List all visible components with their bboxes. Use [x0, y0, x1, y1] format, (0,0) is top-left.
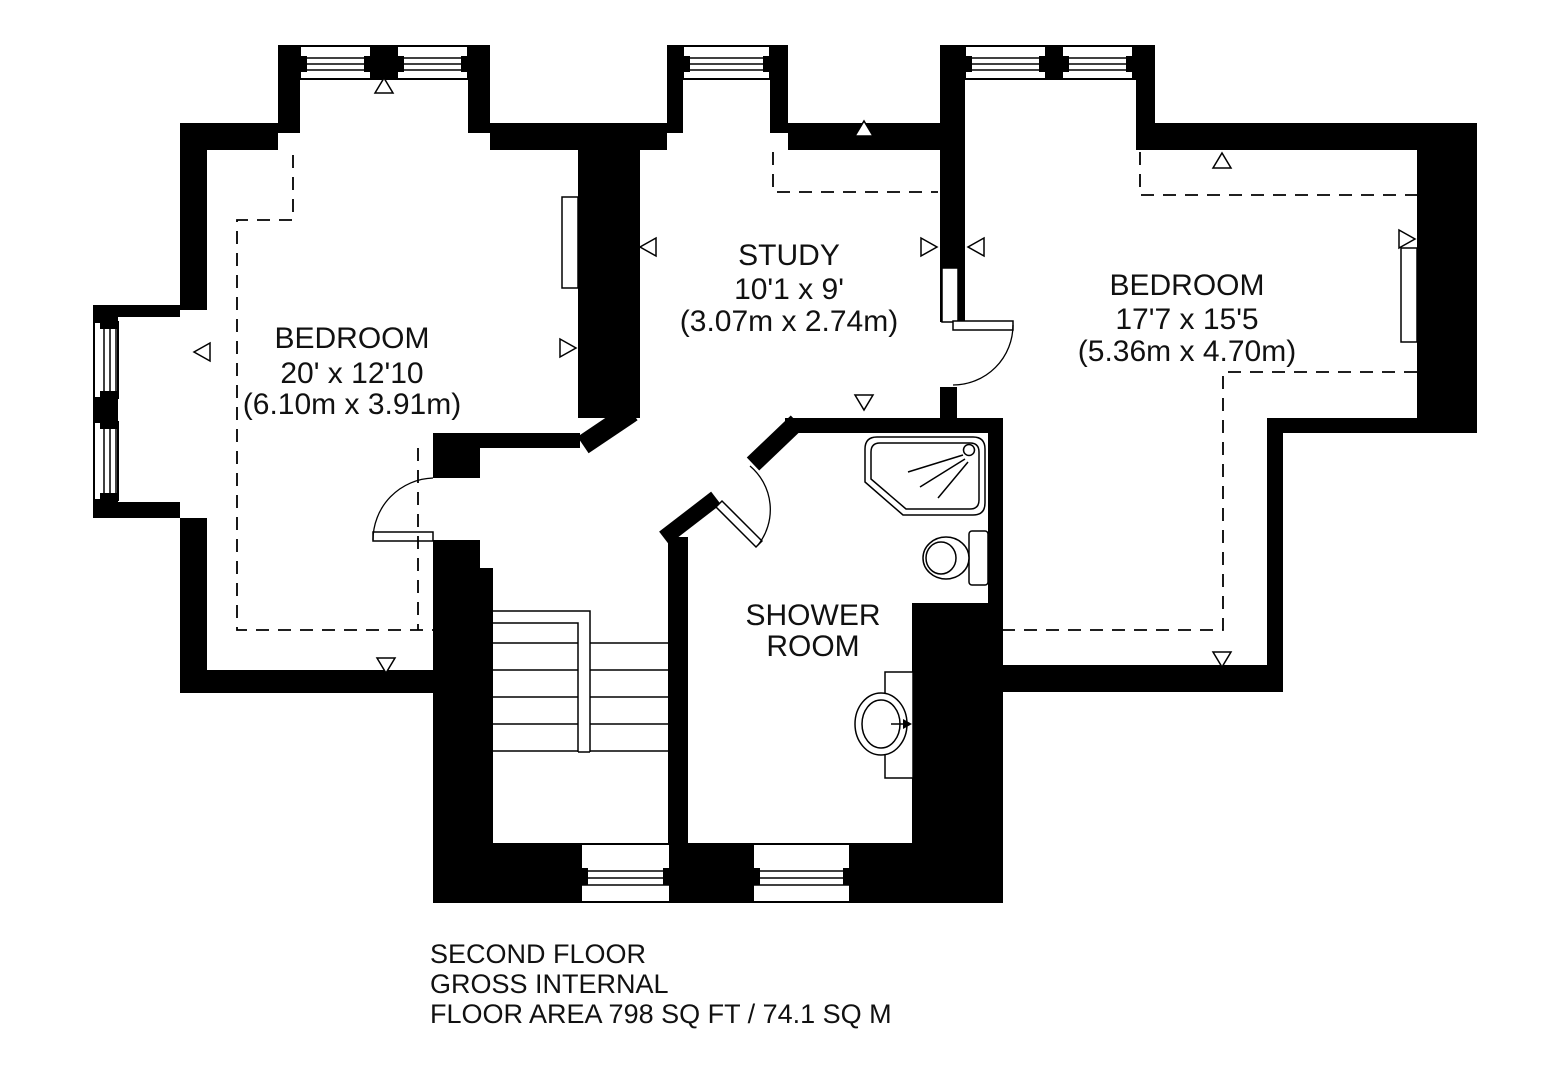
window-stairwell-bottom [581, 844, 670, 902]
floorplan-page: BEDROOM 20' x 12'10 (6.10m x 3.91m) STUD… [0, 0, 1563, 1069]
eaves-marker-right-bedroom-bottom [1213, 652, 1231, 667]
footer-gross-internal: GROSS INTERNAL [430, 969, 669, 999]
window-right-bedroom-1 [965, 46, 1046, 79]
window-left-bay-2 [94, 422, 118, 500]
staircase [493, 611, 670, 752]
window-bay-left-bedroom-2 [397, 46, 468, 79]
eaves-marker-study-left [640, 238, 656, 256]
window-right-bedroom-2 [1062, 46, 1133, 79]
labels: BEDROOM 20' x 12'10 (6.10m x 3.91m) STUD… [243, 239, 1296, 1029]
walls [93, 45, 1477, 903]
room-size-imperial-bedroom-right: 17'7 x 15'5 [1115, 303, 1258, 336]
eaves-marker-left-bay-top [375, 78, 393, 93]
room-name-bedroom-right: BEDROOM [1109, 269, 1264, 302]
window-left-bay-1 [94, 322, 118, 398]
eaves-marker-left-bedroom-left [194, 343, 210, 361]
room-size-imperial-study: 10'1 x 9' [734, 273, 844, 306]
room-name-bedroom-left: BEDROOM [274, 322, 429, 355]
room-size-metric-bedroom-left: (6.10m x 3.91m) [243, 388, 461, 421]
door-left-bedroom [373, 478, 433, 541]
room-name-shower-line2: ROOM [766, 630, 859, 663]
recess-left-bedroom [562, 197, 578, 288]
eaves-marker-study-right [921, 238, 937, 256]
shower-tray-icon [865, 437, 985, 515]
window-shower-bottom [753, 844, 850, 902]
windows [94, 46, 1417, 902]
window-bay-left-bedroom-1 [300, 46, 371, 79]
stair-handrail [493, 611, 590, 752]
eaves-marker-right-bedroom-top [1213, 153, 1231, 168]
floorplan-svg: BEDROOM 20' x 12'10 (6.10m x 3.91m) STUD… [0, 0, 1563, 1069]
recess-right-bedroom [1401, 248, 1417, 342]
room-size-imperial-bedroom-left: 20' x 12'10 [280, 357, 423, 390]
eaves-marker-left-bedroom-right [560, 339, 576, 357]
room-size-metric-study: (3.07m x 2.74m) [680, 305, 898, 338]
eaves-marker-right-bedroom-right [1399, 230, 1415, 248]
room-name-shower-line1: SHOWER [746, 599, 881, 632]
footer-floor-name: SECOND FLOOR [430, 939, 646, 969]
room-name-study: STUDY [738, 239, 840, 272]
window-study-bay [683, 46, 770, 79]
eaves-marker-study-bottom [855, 395, 873, 410]
door-right-bedroom [953, 321, 1013, 385]
headroom-line-right-bedroom-top [1140, 152, 1417, 195]
toilet-icon [923, 531, 988, 585]
recess-study-wall [942, 268, 958, 322]
headroom-line-right-bedroom-bottom [1003, 372, 1417, 630]
room-size-metric-bedroom-right: (5.36m x 4.70m) [1078, 335, 1296, 368]
footer-floor-area: FLOOR AREA 798 SQ FT / 74.1 SQ M [430, 999, 892, 1029]
sink-icon [855, 672, 913, 778]
eaves-marker-right-bedroom-left [968, 238, 984, 256]
headroom-line-study [773, 152, 938, 192]
door-shower-room [716, 466, 770, 547]
